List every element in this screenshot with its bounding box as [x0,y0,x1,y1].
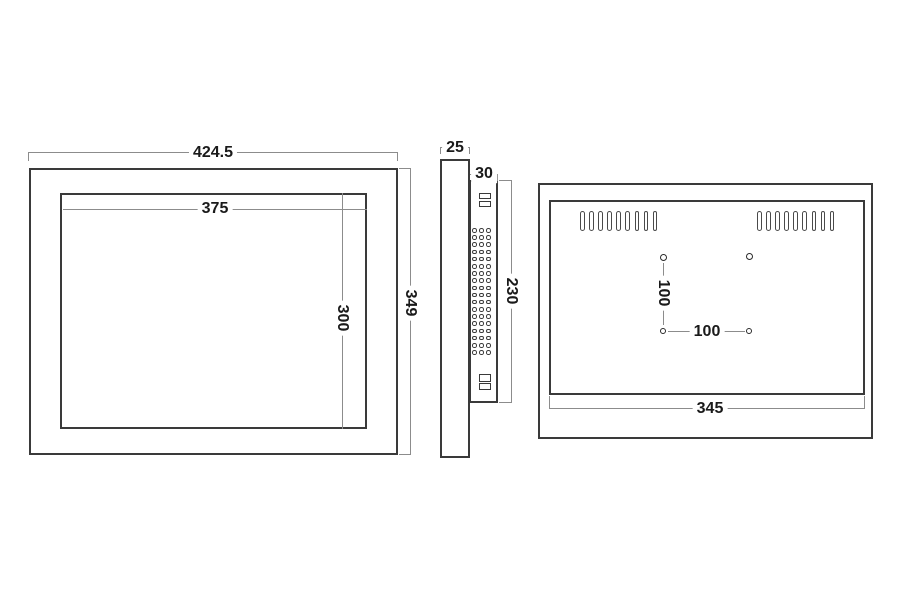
connector-block [479,383,491,391]
vent-slot [757,211,762,231]
vent-hole [479,314,484,319]
vent-hole [472,350,477,355]
side-front-bezel [440,159,470,458]
dim-body-width-ext-right [864,396,865,408]
vent-slot [653,211,658,231]
dim-front-thickness-tick-left [440,147,441,154]
vent-hole [486,293,491,298]
side-vent-hole-grid [472,228,491,355]
vent-slot [821,211,826,231]
vent-slot [580,211,585,231]
vent-hole [486,235,491,240]
vent-hole [479,271,484,276]
dim-body-width-ext-left [549,396,550,408]
vent-hole [486,271,491,276]
vent-hole [479,264,484,269]
vent-hole [472,278,477,283]
vent-hole [486,314,491,319]
vent-hole [479,350,484,355]
vent-hole [486,257,491,262]
side-connector-top [479,193,491,207]
back-vent-group-right [757,211,834,231]
vent-hole [472,300,477,305]
vent-hole [479,336,484,341]
dim-display-height-label: 300 [333,301,351,336]
dim-vesa-horizontal-label: 100 [690,323,725,341]
mount-hole-top-right [746,253,753,260]
vent-hole [479,278,484,283]
vent-hole [486,264,491,269]
vent-hole [486,336,491,341]
vent-hole [472,250,477,255]
connector-block [479,193,491,199]
vent-hole [486,278,491,283]
connector-block [479,374,491,382]
vent-hole [479,286,484,291]
vent-hole [479,329,484,334]
vent-slot [830,211,835,231]
vent-slot [812,211,817,231]
vent-hole [486,242,491,247]
vent-hole [486,228,491,233]
dimension-drawing: 424.5 375 300 349 25 30 230 [0,0,900,600]
front-screen-area [60,193,367,429]
vent-slot [589,211,594,231]
dim-front-thickness-tick-right [469,147,470,154]
vent-hole [486,343,491,348]
vent-hole [472,271,477,276]
dim-body-width-label: 345 [693,400,728,418]
vent-slot [635,211,640,231]
vent-hole [472,314,477,319]
vent-slot [802,211,807,231]
vent-hole [486,329,491,334]
vent-hole [472,336,477,341]
vent-hole [472,321,477,326]
vent-hole [472,257,477,262]
dim-overall-height-tick-bottom [399,454,411,455]
dim-display-width-label: 375 [198,200,233,218]
dim-rear-height-tick-bottom [499,402,512,403]
vent-hole [479,321,484,326]
vent-hole [472,343,477,348]
vent-hole [479,293,484,298]
vent-slot [784,211,789,231]
vent-hole [479,235,484,240]
vent-hole [479,250,484,255]
dim-overall-width-label: 424.5 [189,144,237,162]
vent-hole [472,228,477,233]
vent-slot [766,211,771,231]
vent-hole [479,343,484,348]
vent-hole [479,257,484,262]
mount-hole-bottom-right [746,328,752,334]
dim-rear-height-tick-top [499,180,512,181]
mount-hole-top-left [660,254,667,261]
dim-rear-thickness-label: 30 [471,165,497,183]
vent-slot [644,211,649,231]
vent-hole [486,307,491,312]
vent-slot [607,211,612,231]
back-vent-group-left [580,211,657,231]
vent-slot [625,211,630,231]
vent-hole [479,300,484,305]
vent-slot [598,211,603,231]
vent-hole [472,286,477,291]
vent-hole [472,264,477,269]
vent-hole [486,321,491,326]
dim-overall-width-tick-left [28,152,29,161]
vent-slot [616,211,621,231]
vent-hole [479,242,484,247]
connector-block [479,201,491,207]
dim-front-thickness-label: 25 [442,139,468,157]
vent-hole [472,329,477,334]
vent-hole [472,235,477,240]
vent-hole [479,228,484,233]
vent-hole [486,250,491,255]
vent-hole [472,242,477,247]
vent-hole [472,293,477,298]
vent-hole [479,307,484,312]
mount-hole-bottom-left [660,328,666,334]
vent-hole [486,300,491,305]
vent-hole [486,350,491,355]
dim-overall-width-tick-right [397,152,398,161]
dim-overall-height-tick-top [399,168,411,169]
vent-slot [775,211,780,231]
vent-hole [486,286,491,291]
vent-slot [793,211,798,231]
dim-rear-height-label: 230 [502,274,520,309]
dim-vesa-vertical-label: 100 [654,276,672,311]
dim-overall-height-label: 349 [401,286,419,321]
dim-rear-thickness-tick-right [497,174,498,181]
vent-hole [472,307,477,312]
side-connector-bottom [479,374,491,390]
